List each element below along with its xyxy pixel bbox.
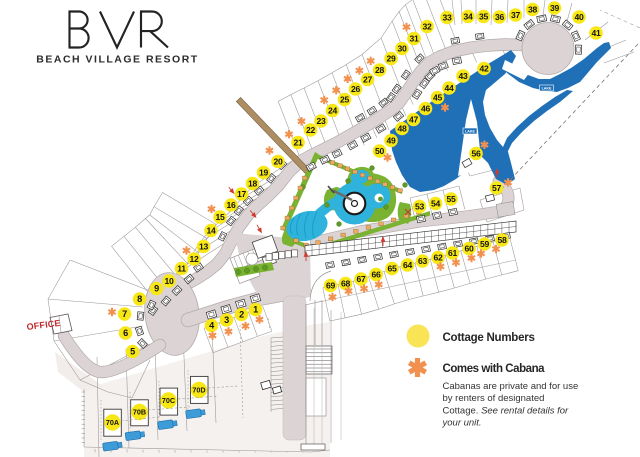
svg-text:LAKE: LAKE [465,130,475,134]
svg-text:15: 15 [216,212,225,222]
svg-text:21: 21 [294,138,303,148]
svg-text:23: 23 [317,116,326,126]
svg-text:46: 46 [421,104,430,114]
svg-text:25: 25 [340,95,349,105]
svg-text:70D: 70D [192,386,205,395]
svg-text:58: 58 [498,235,507,245]
svg-text:70B: 70B [133,408,146,417]
svg-text:13: 13 [199,242,208,252]
svg-text:1: 1 [253,305,258,315]
svg-text:BEACH VILLAGE RESORT: BEACH VILLAGE RESORT [36,54,198,66]
svg-text:57: 57 [492,183,501,193]
svg-text:28: 28 [375,65,384,75]
svg-text:3: 3 [224,315,229,325]
svg-text:63: 63 [418,256,427,266]
svg-text:17: 17 [237,189,246,199]
svg-text:40: 40 [575,12,584,22]
svg-text:5: 5 [130,347,135,357]
svg-text:49: 49 [387,136,396,146]
svg-text:64: 64 [403,260,412,270]
svg-text:your unit.: your unit. [442,418,482,429]
svg-text:70A: 70A [106,418,119,427]
svg-text:41: 41 [592,28,601,38]
svg-text:Cottage. See rental details fo: Cottage. See rental details for [443,405,570,416]
svg-text:Cottage Numbers: Cottage Numbers [443,332,535,344]
svg-text:by renters of designated: by renters of designated [443,393,545,404]
svg-text:65: 65 [388,264,397,274]
svg-text:36: 36 [495,12,504,22]
svg-text:26: 26 [351,84,360,94]
svg-text:43: 43 [459,71,468,81]
svg-text:54: 54 [431,199,440,209]
svg-text:59: 59 [480,239,489,249]
svg-text:55: 55 [447,194,456,204]
svg-text:Cabanas are private and for us: Cabanas are private and for use [443,381,579,392]
svg-text:45: 45 [433,93,442,103]
svg-text:42: 42 [480,64,489,74]
svg-text:22: 22 [306,125,315,135]
svg-text:19: 19 [259,168,268,178]
svg-text:47: 47 [409,115,418,125]
svg-text:61: 61 [448,248,457,258]
svg-text:2: 2 [239,310,244,320]
svg-text:LAKE: LAKE [542,87,552,91]
svg-text:31: 31 [410,34,419,44]
svg-text:9: 9 [154,284,159,294]
svg-text:12: 12 [190,254,199,264]
svg-text:7: 7 [122,309,127,319]
svg-text:14: 14 [207,226,216,236]
svg-text:34: 34 [464,12,473,22]
svg-text:38: 38 [528,5,537,15]
svg-text:29: 29 [387,54,396,64]
svg-text:20: 20 [274,157,283,167]
svg-text:35: 35 [479,12,488,22]
svg-text:53: 53 [415,202,424,212]
svg-text:50: 50 [375,146,384,156]
svg-text:18: 18 [248,179,257,189]
svg-text:48: 48 [398,124,407,134]
svg-text:27: 27 [363,75,372,85]
svg-text:60: 60 [465,244,474,254]
svg-text:30: 30 [398,44,407,54]
svg-text:66: 66 [372,270,381,280]
svg-text:62: 62 [434,253,443,263]
svg-text:70C: 70C [162,396,175,405]
svg-text:33: 33 [443,13,452,23]
svg-text:39: 39 [550,3,559,13]
svg-text:67: 67 [357,274,366,284]
svg-text:6: 6 [123,328,128,338]
svg-text:11: 11 [177,264,186,274]
svg-text:10: 10 [165,276,174,286]
svg-text:37: 37 [511,10,520,20]
svg-text:8: 8 [137,294,142,304]
svg-text:56: 56 [472,149,481,159]
svg-text:24: 24 [328,106,337,116]
svg-text:Comes with Cabana: Comes with Cabana [443,363,546,375]
svg-text:16: 16 [227,200,236,210]
svg-text:32: 32 [423,22,432,32]
svg-text:69: 69 [326,281,335,291]
svg-text:44: 44 [445,83,454,93]
